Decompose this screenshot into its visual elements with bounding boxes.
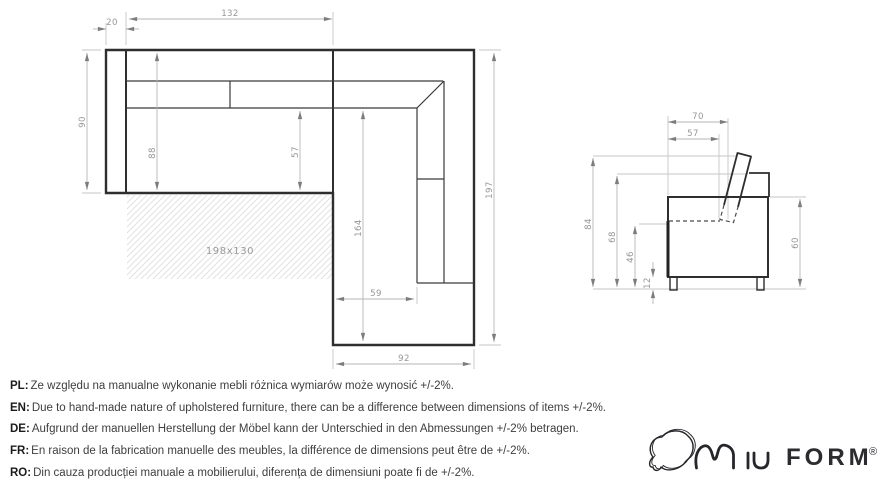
disclaimer-line-fr: FR:En raison de la fabrication manuelle … <box>10 441 650 463</box>
dim-arm-width: 20 <box>106 18 118 28</box>
dim-backrest-top-width: 70 <box>692 112 704 122</box>
disclaimer-lang: FR: <box>10 445 29 457</box>
back-panel <box>749 173 769 197</box>
disclaimer-line-de: DE:Aufgrund der manuellen Herstellung de… <box>10 419 650 441</box>
disclaimer-lang: RO: <box>10 467 31 479</box>
dim-chaise-width: 92 <box>398 354 410 364</box>
dim-cushion-depth: 57 <box>687 129 699 139</box>
dim-total-height: 84 <box>584 218 594 230</box>
top-view-drawing: 198x130 <box>78 9 501 369</box>
disclaimer-lang: EN: <box>10 402 30 414</box>
dim-leg-height: 12 <box>643 277 653 289</box>
disclaimer-line-ro: RO:Din cauza producției manuale a mobili… <box>10 463 650 485</box>
dim-back-height: 68 <box>608 231 618 243</box>
logo-bean-icon <box>650 429 696 470</box>
extension-lines-side-view <box>593 116 806 289</box>
disclaimer-lang: DE: <box>10 423 30 435</box>
registered-trademark-icon: ® <box>869 446 877 458</box>
dimension-drawing: 198x130 <box>0 0 890 375</box>
backrest-cushion-hidden <box>720 205 738 223</box>
miuform-logo: FORM ® <box>640 424 890 486</box>
side-view-drawing: 70 57 84 68 46 12 60 <box>584 112 806 304</box>
disclaimer-text: Due to hand-made nature of upholstered f… <box>32 402 606 414</box>
front-leg <box>670 277 677 290</box>
dim-seat-height: 46 <box>626 251 636 263</box>
disclaimer-text: Din cauza producției manuale a mobilieru… <box>33 467 474 479</box>
dimensions-top-view: 132 20 90 88 57 164 197 59 92 <box>78 9 495 364</box>
sofa-body <box>668 197 768 277</box>
disclaimer-line-pl: PL:Ze względu na manualne wykonanie mebl… <box>10 376 650 398</box>
dim-section-width: 132 <box>221 9 239 19</box>
sleeping-area-hatch: 198x130 <box>127 195 333 279</box>
disclaimer-block: PL:Ze względu na manualne wykonanie mebl… <box>10 376 650 485</box>
disclaimer-text: Ze względu na manualne wykonanie mebli r… <box>31 380 454 392</box>
dim-total-length: 197 <box>485 181 495 199</box>
disclaimer-text: En raison de la fabrication manuelle des… <box>31 445 530 457</box>
dim-corner-seat-width: 59 <box>370 289 382 299</box>
extension-lines-top-view <box>82 12 501 369</box>
dim-depth: 90 <box>78 116 88 128</box>
dim-side-height: 60 <box>791 237 801 249</box>
dim-chaise-inner-length: 164 <box>354 219 364 237</box>
disclaimer-line-en: EN:Due to hand-made nature of upholstere… <box>10 398 650 420</box>
dim-seat-depth: 57 <box>291 146 301 158</box>
sleeping-area-label: 198x130 <box>206 246 254 257</box>
disclaimer-text: Aufgrund der manuellen Herstellung der M… <box>32 423 579 435</box>
disclaimer-lang: PL: <box>10 380 29 392</box>
dim-inner-depth: 88 <box>148 147 158 159</box>
logo-wordmark: FORM <box>786 444 873 471</box>
back-leg <box>757 277 764 290</box>
logo-script-miu <box>696 445 768 468</box>
